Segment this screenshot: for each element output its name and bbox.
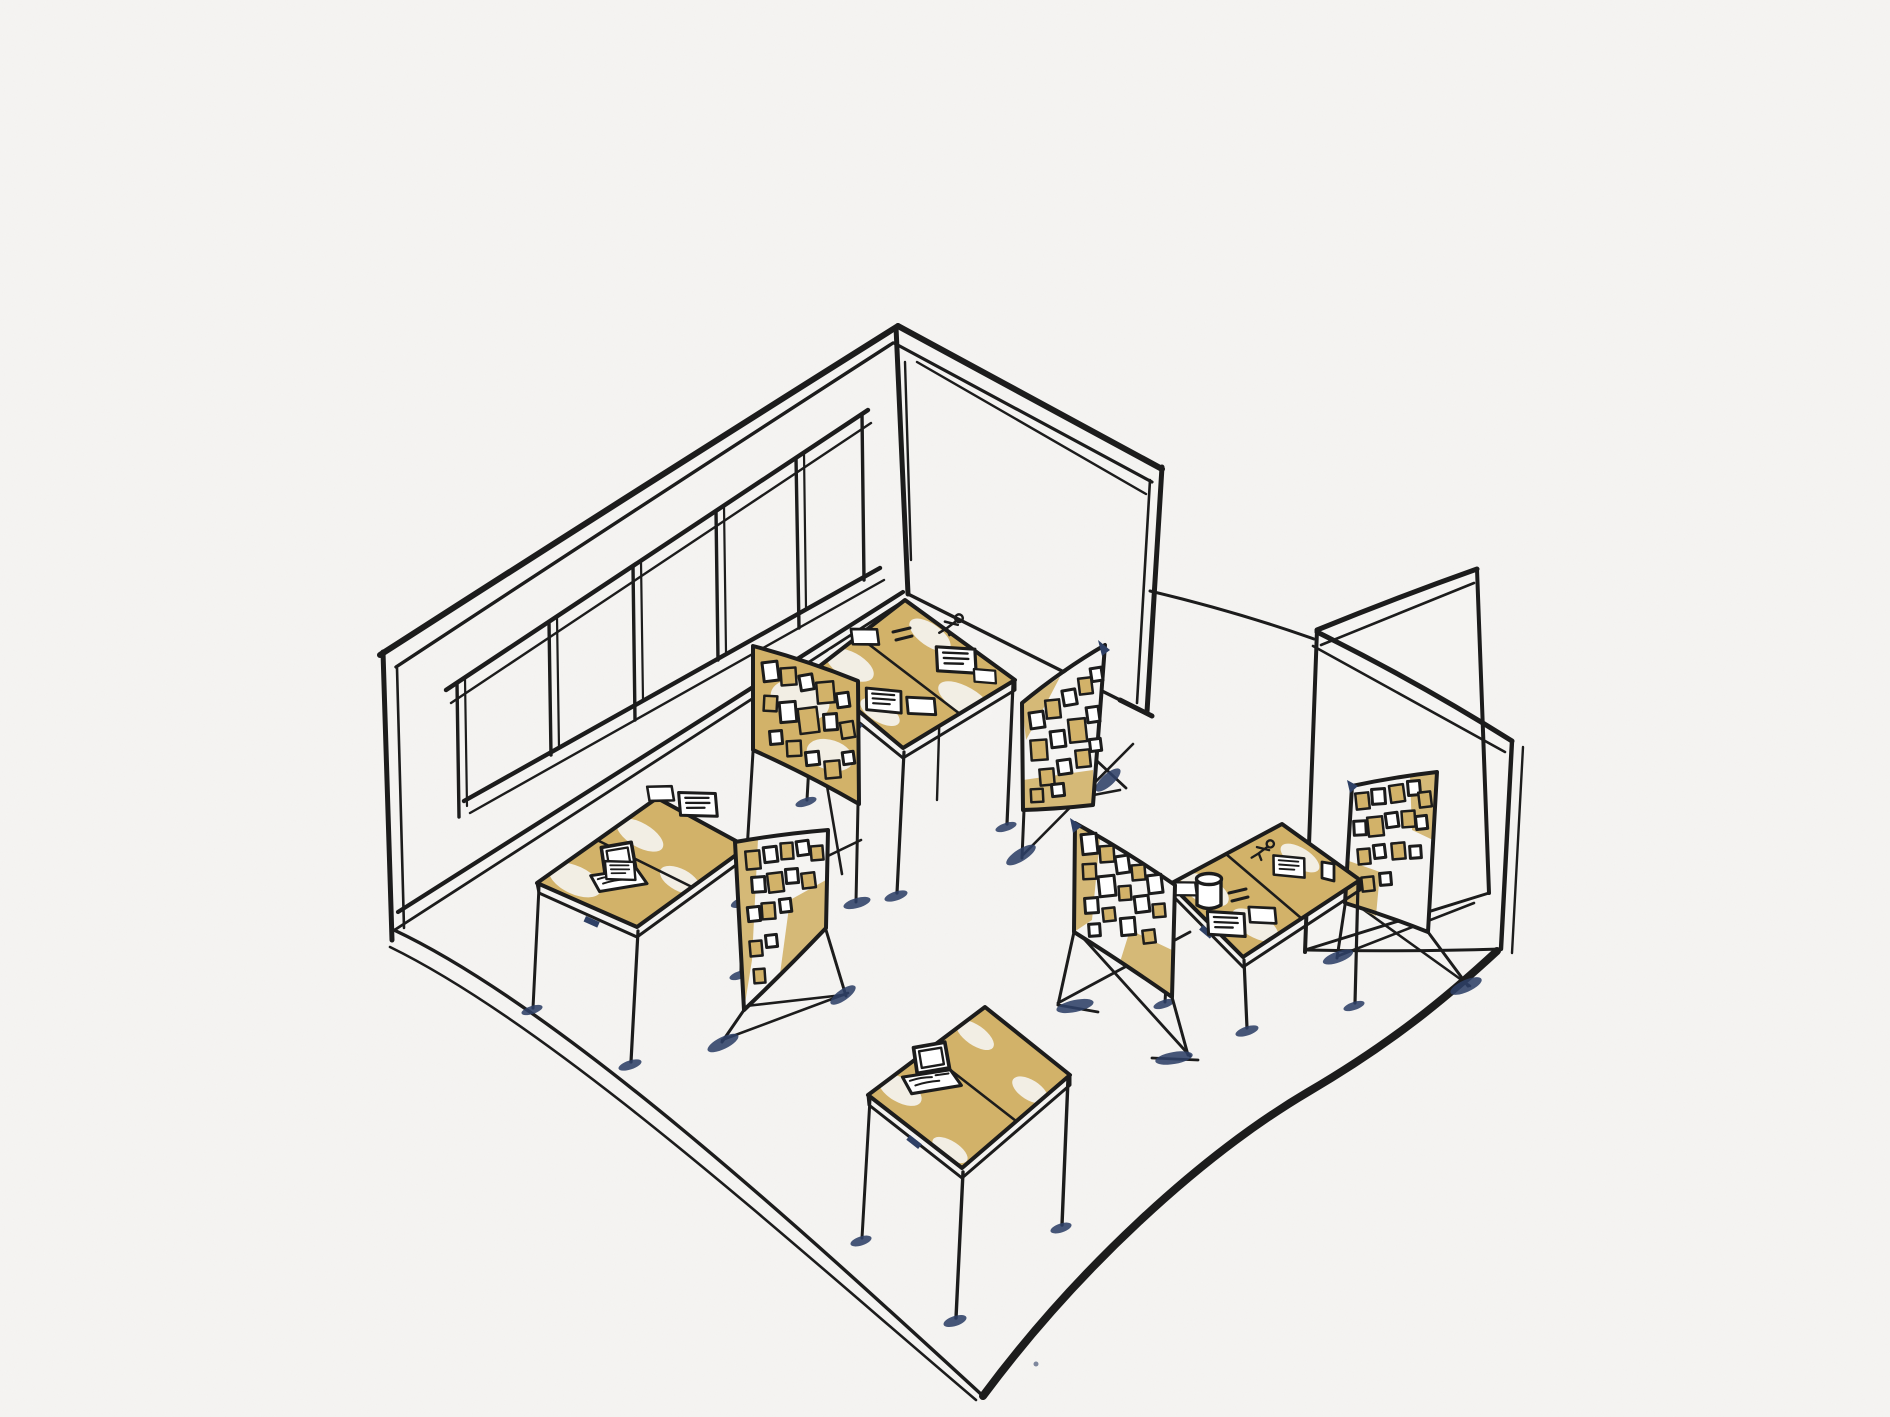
sketch-canvas	[0, 0, 1890, 1417]
mug	[1197, 874, 1222, 909]
workshop-room-sketch	[0, 0, 1890, 1417]
